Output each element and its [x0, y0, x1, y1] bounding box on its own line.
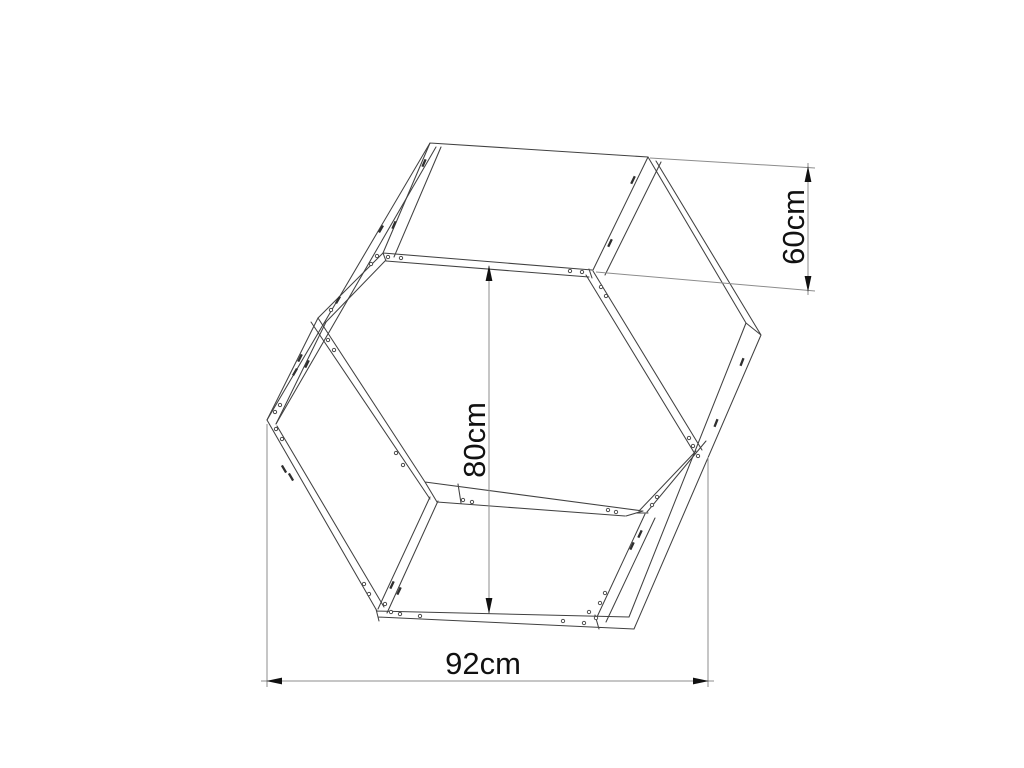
dim-60-extension-top [650, 158, 815, 168]
dimension-label-height: 60cm [776, 189, 811, 265]
dim-60-extension-bottom [596, 272, 815, 291]
dim-80-arrow-up-icon [486, 265, 493, 281]
dim-80-arrow-down-icon [486, 598, 493, 614]
inner-rim-lines [311, 253, 706, 516]
frame-lines [267, 143, 761, 629]
technical-drawing-canvas: 60cm 80cm 92cm [0, 0, 1024, 768]
hexagonal-frame-drawing: 60cm 80cm 92cm [0, 0, 1024, 768]
dim-60-arrow-up-icon [805, 166, 812, 182]
dim-60-arrow-down-icon [805, 276, 812, 292]
dimension-label-across-flats: 80cm [457, 402, 492, 478]
dim-92-arrow-left-icon [266, 678, 282, 685]
dim-92-arrow-right-icon [693, 678, 709, 685]
dimension-80: 80cm [457, 265, 492, 614]
dimension-label-across-corners: 92cm [445, 646, 521, 681]
corner-joint-lines [267, 143, 661, 622]
outer-rim-lines [267, 143, 761, 629]
screw-slots [282, 159, 744, 594]
